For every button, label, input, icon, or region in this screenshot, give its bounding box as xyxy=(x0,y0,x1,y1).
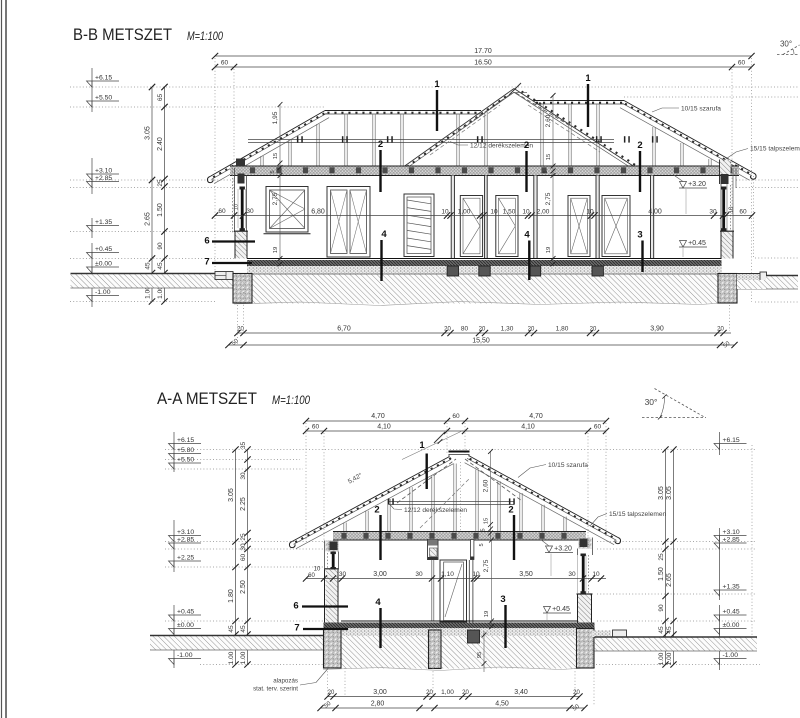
svg-text:15,50: 15,50 xyxy=(472,338,490,345)
svg-text:4,10: 4,10 xyxy=(521,424,535,431)
svg-text:30: 30 xyxy=(246,208,254,215)
svg-text:35: 35 xyxy=(240,442,247,450)
svg-text:2.65: 2.65 xyxy=(145,212,152,226)
svg-text:3: 3 xyxy=(637,230,642,241)
svg-text:30: 30 xyxy=(568,571,576,578)
svg-text:3.05: 3.05 xyxy=(145,126,152,140)
svg-text:2.25: 2.25 xyxy=(240,497,247,511)
svg-text:60: 60 xyxy=(738,60,746,67)
svg-text:60: 60 xyxy=(739,209,747,216)
svg-text:1: 1 xyxy=(419,440,425,451)
svg-text:-1.00: -1.00 xyxy=(177,652,193,659)
svg-text:20: 20 xyxy=(590,327,597,333)
svg-text:80: 80 xyxy=(461,326,469,333)
svg-text:+1.35: +1.35 xyxy=(95,219,112,226)
svg-text:20: 20 xyxy=(573,690,580,696)
svg-text:1.00: 1.00 xyxy=(228,651,235,664)
svg-text:19: 19 xyxy=(546,247,552,253)
svg-text:30: 30 xyxy=(240,543,247,551)
svg-text:6: 6 xyxy=(204,236,209,247)
svg-text:20: 20 xyxy=(717,327,724,333)
svg-text:alapozás: alapozás xyxy=(273,678,298,685)
svg-text:+3.20: +3.20 xyxy=(688,181,706,188)
svg-text:2,75: 2,75 xyxy=(483,559,490,572)
svg-text:4: 4 xyxy=(524,230,530,241)
svg-text:20: 20 xyxy=(444,327,451,333)
svg-text:+0.45: +0.45 xyxy=(177,609,194,616)
svg-text:4,50: 4,50 xyxy=(495,701,509,708)
svg-text:+2.85: +2.85 xyxy=(177,537,194,544)
svg-text:4,10: 4,10 xyxy=(377,424,391,431)
svg-text:45: 45 xyxy=(658,626,665,634)
svg-text:3,90: 3,90 xyxy=(650,326,664,333)
svg-text:1.00: 1.00 xyxy=(666,652,673,665)
svg-text:15/15 talpszelemen: 15/15 talpszelemen xyxy=(750,146,800,153)
svg-text:±0.00: ±0.00 xyxy=(177,622,194,629)
svg-text:1.00: 1.00 xyxy=(240,651,247,664)
svg-text:10: 10 xyxy=(441,209,449,216)
svg-text:30: 30 xyxy=(415,571,423,578)
svg-text:1.00: 1.00 xyxy=(658,652,665,665)
svg-text:1,80: 1,80 xyxy=(556,326,569,333)
svg-text:90: 90 xyxy=(157,242,164,250)
svg-text:2,80: 2,80 xyxy=(371,701,385,708)
svg-text:15/15 talpszelemen: 15/15 talpszelemen xyxy=(609,511,667,518)
svg-text:10: 10 xyxy=(729,206,735,213)
svg-text:3.05: 3.05 xyxy=(228,488,235,502)
svg-text:6,80: 6,80 xyxy=(311,209,325,216)
svg-text:+0.45: +0.45 xyxy=(688,240,706,247)
svg-text:5: 5 xyxy=(270,170,276,173)
svg-text:20: 20 xyxy=(462,690,469,696)
svg-text:+0.45: +0.45 xyxy=(552,606,570,613)
svg-text:5: 5 xyxy=(481,528,487,531)
svg-text:60: 60 xyxy=(594,424,602,431)
svg-text:30°: 30° xyxy=(645,397,658,407)
svg-text:1,10: 1,10 xyxy=(441,571,454,578)
svg-text:+5.50: +5.50 xyxy=(95,95,112,102)
svg-text:10: 10 xyxy=(490,209,498,216)
svg-text:2,60: 2,60 xyxy=(545,114,552,127)
svg-text:3: 3 xyxy=(500,594,505,605)
svg-text:+5.80: +5.80 xyxy=(177,447,194,454)
svg-text:3.05: 3.05 xyxy=(658,486,665,500)
svg-text:45: 45 xyxy=(666,626,673,634)
svg-text:25: 25 xyxy=(658,553,665,561)
svg-text:30: 30 xyxy=(709,209,717,216)
svg-text:10: 10 xyxy=(522,209,530,216)
svg-text:15: 15 xyxy=(484,518,490,524)
svg-text:5: 5 xyxy=(479,543,485,546)
svg-text:2.40: 2.40 xyxy=(157,137,164,151)
svg-text:60: 60 xyxy=(240,554,247,562)
svg-text:+2.85: +2.85 xyxy=(723,537,740,544)
svg-text:6,70: 6,70 xyxy=(337,326,351,333)
svg-text:-1.00: -1.00 xyxy=(95,289,111,296)
svg-text:10: 10 xyxy=(586,209,594,216)
svg-text:+2.25: +2.25 xyxy=(177,555,194,562)
svg-text:95: 95 xyxy=(477,652,483,658)
svg-text:10/15 szarufa: 10/15 szarufa xyxy=(681,106,721,113)
svg-text:3.05: 3.05 xyxy=(666,486,673,500)
svg-text:5: 5 xyxy=(543,170,549,173)
svg-text:90: 90 xyxy=(658,604,665,612)
svg-text:M=1:100: M=1:100 xyxy=(187,29,223,43)
svg-text:2.50: 2.50 xyxy=(240,580,247,594)
svg-text:10: 10 xyxy=(592,571,600,578)
svg-text:16.50: 16.50 xyxy=(474,60,492,67)
svg-text:1: 1 xyxy=(434,79,440,90)
svg-text:30: 30 xyxy=(339,571,347,578)
svg-text:45: 45 xyxy=(145,262,152,270)
svg-text:±0.00: ±0.00 xyxy=(95,261,112,268)
svg-text:3,00: 3,00 xyxy=(373,571,387,578)
svg-text:+3.10: +3.10 xyxy=(95,168,112,175)
svg-text:2: 2 xyxy=(378,139,383,150)
svg-text:3,00: 3,00 xyxy=(373,689,387,696)
svg-text:17.70: 17.70 xyxy=(474,48,492,55)
svg-text:1,50: 1,50 xyxy=(503,209,516,216)
svg-text:4,00: 4,00 xyxy=(648,209,662,216)
svg-text:3,50: 3,50 xyxy=(519,571,533,578)
svg-text:60: 60 xyxy=(312,424,320,431)
svg-text:4,70: 4,70 xyxy=(371,413,385,420)
svg-text:+3.20: +3.20 xyxy=(554,545,572,552)
svg-text:4: 4 xyxy=(375,597,381,608)
svg-text:1,95: 1,95 xyxy=(272,111,279,124)
svg-text:50: 50 xyxy=(572,703,581,712)
svg-text:25: 25 xyxy=(157,179,164,187)
svg-text:1.80: 1.80 xyxy=(228,589,235,603)
svg-text:1,00: 1,00 xyxy=(458,209,471,216)
svg-text:19: 19 xyxy=(273,247,279,253)
svg-text:+2.85: +2.85 xyxy=(95,175,112,182)
svg-text:10: 10 xyxy=(234,204,240,210)
svg-text:2,75: 2,75 xyxy=(272,192,279,205)
svg-text:65: 65 xyxy=(157,94,164,102)
svg-text:+6.15: +6.15 xyxy=(723,437,740,444)
svg-text:+3.10: +3.10 xyxy=(177,529,194,536)
svg-text:2: 2 xyxy=(524,140,529,151)
svg-text:1.50: 1.50 xyxy=(658,567,665,581)
svg-text:B-B METSZET: B-B METSZET xyxy=(73,26,172,44)
svg-text:2,00: 2,00 xyxy=(537,209,550,216)
svg-text:30°: 30° xyxy=(780,40,792,49)
svg-text:20: 20 xyxy=(479,327,486,333)
svg-text:20: 20 xyxy=(528,327,535,333)
svg-text:10: 10 xyxy=(314,567,321,573)
svg-text:60: 60 xyxy=(452,413,460,420)
svg-text:45: 45 xyxy=(228,625,235,633)
svg-text:15: 15 xyxy=(273,153,279,159)
svg-text:10: 10 xyxy=(472,571,480,578)
svg-text:4: 4 xyxy=(381,229,387,240)
svg-text:±0.00: ±0.00 xyxy=(723,622,740,629)
svg-text:60: 60 xyxy=(221,60,229,67)
svg-text:M=1:100: M=1:100 xyxy=(272,393,310,407)
svg-text:7: 7 xyxy=(294,623,299,634)
svg-text:1: 1 xyxy=(585,73,591,84)
svg-text:2: 2 xyxy=(508,505,513,516)
svg-text:45: 45 xyxy=(240,625,247,633)
svg-text:3,40: 3,40 xyxy=(514,689,528,696)
svg-text:15: 15 xyxy=(546,154,552,160)
svg-text:60: 60 xyxy=(218,208,226,215)
svg-text:60: 60 xyxy=(308,573,315,579)
svg-text:7: 7 xyxy=(204,257,209,268)
svg-text:+0.45: +0.45 xyxy=(95,246,112,253)
svg-text:1,30: 1,30 xyxy=(501,326,514,333)
svg-text:20: 20 xyxy=(426,690,433,696)
svg-text:2,75: 2,75 xyxy=(545,192,552,205)
svg-text:+5.50: +5.50 xyxy=(177,457,194,464)
svg-text:50: 50 xyxy=(722,340,731,349)
svg-text:5,42°: 5,42° xyxy=(346,471,364,486)
svg-text:stat. terv. szerint: stat. terv. szerint xyxy=(253,686,298,693)
svg-text:2.65: 2.65 xyxy=(666,573,673,587)
svg-text:20: 20 xyxy=(328,690,335,696)
svg-text:19: 19 xyxy=(484,611,490,617)
svg-text:10/15 szarufa: 10/15 szarufa xyxy=(548,462,588,469)
svg-text:2: 2 xyxy=(637,140,642,151)
svg-text:2,60: 2,60 xyxy=(483,479,490,492)
svg-text:+6.15: +6.15 xyxy=(177,437,194,444)
svg-text:-1.00: -1.00 xyxy=(723,652,739,659)
svg-text:50: 50 xyxy=(231,338,240,347)
svg-text:25: 25 xyxy=(240,533,247,541)
svg-text:+0.45: +0.45 xyxy=(723,609,740,616)
svg-text:6: 6 xyxy=(293,601,298,612)
svg-text:+3.10: +3.10 xyxy=(723,529,740,536)
svg-text:45: 45 xyxy=(157,262,164,270)
svg-text:A-A METSZET: A-A METSZET xyxy=(157,390,257,408)
svg-text:1.50: 1.50 xyxy=(157,203,164,217)
svg-text:4,70: 4,70 xyxy=(529,413,543,420)
svg-text:+1.35: +1.35 xyxy=(723,584,740,591)
svg-text:1,00: 1,00 xyxy=(441,689,454,696)
svg-text:12/12 derékszelemen: 12/12 derékszelemen xyxy=(404,507,467,514)
svg-text:30: 30 xyxy=(240,472,247,480)
svg-text:2: 2 xyxy=(374,505,379,516)
svg-text:+6.15: +6.15 xyxy=(95,75,112,82)
